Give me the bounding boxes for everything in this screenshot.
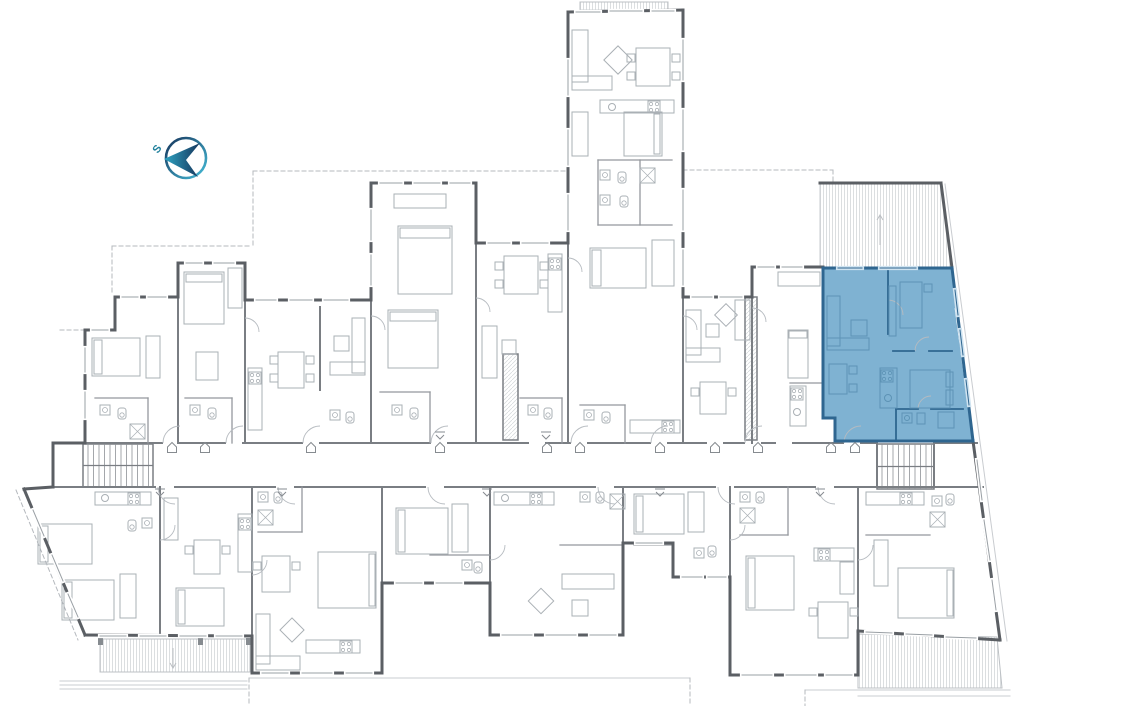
furniture — [788, 330, 808, 378]
furniture — [352, 318, 365, 373]
door-arc — [476, 298, 490, 312]
rug — [280, 618, 304, 642]
furniture — [185, 546, 193, 554]
sink-icon — [330, 410, 340, 420]
compass-north-indicator: S — [151, 138, 206, 178]
sink-icon — [142, 518, 152, 528]
furniture — [292, 562, 300, 570]
entrance-icon — [576, 443, 585, 453]
furniture — [394, 194, 446, 208]
furniture — [92, 338, 140, 376]
door-arc — [371, 316, 385, 330]
sink-icon — [584, 410, 594, 420]
highlighted-unit-layer[interactable] — [823, 268, 973, 441]
furniture — [178, 590, 185, 624]
furniture — [850, 608, 858, 616]
furniture — [495, 280, 503, 288]
door-arc — [226, 426, 243, 443]
unit-marker-icon — [816, 492, 824, 496]
furniture — [562, 574, 614, 589]
furniture — [390, 312, 436, 321]
furniture — [248, 368, 262, 430]
furniture — [672, 54, 680, 62]
furniture — [396, 508, 448, 554]
furniture-layer — [38, 30, 954, 670]
entrance-icon — [711, 443, 720, 453]
furniture — [572, 112, 588, 156]
sink-icon — [932, 496, 942, 506]
door-arc — [568, 258, 582, 272]
furniture — [590, 248, 646, 288]
sink-icon — [100, 405, 110, 415]
furniture — [700, 382, 726, 414]
furniture — [636, 48, 670, 86]
furniture — [262, 556, 290, 592]
furniture — [222, 546, 230, 554]
entrance-icon — [168, 443, 177, 453]
furniture — [634, 494, 684, 534]
furniture — [256, 656, 300, 670]
furniture — [818, 602, 848, 638]
balcony-post — [98, 638, 103, 645]
furniture — [194, 540, 220, 574]
floor-plan-svg: S — [0, 0, 1140, 706]
furniture — [388, 310, 438, 368]
furniture — [270, 374, 278, 382]
door-arc — [718, 487, 735, 504]
furniture — [866, 492, 924, 505]
furniture — [146, 336, 160, 378]
furniture — [874, 540, 888, 586]
door-arc — [431, 426, 448, 443]
furniture — [253, 562, 261, 570]
floor-plan: S — [0, 0, 1140, 706]
sink-icon — [794, 409, 801, 416]
furniture — [691, 388, 699, 396]
furniture — [572, 30, 588, 82]
sink-icon — [502, 495, 509, 502]
highlighted-unit[interactable] — [823, 268, 973, 441]
shaft — [503, 354, 518, 440]
sink-icon — [600, 170, 610, 180]
unit-marker-icon — [436, 435, 444, 439]
balcony-post — [246, 638, 251, 645]
furniture — [238, 514, 252, 572]
rug — [715, 304, 738, 327]
furniture — [572, 600, 588, 616]
furniture — [947, 570, 953, 616]
furniture — [176, 588, 224, 626]
entrance-icon — [307, 443, 316, 453]
furniture — [398, 226, 452, 294]
sink-icon — [392, 405, 402, 415]
furniture — [778, 272, 820, 286]
furniture — [789, 331, 807, 338]
furniture — [636, 496, 643, 532]
furniture — [164, 498, 178, 540]
terrace-hatch — [580, 2, 668, 10]
sink-icon — [102, 495, 109, 502]
furniture — [186, 274, 222, 282]
sink-icon — [258, 492, 268, 502]
furniture — [482, 326, 497, 378]
furniture — [654, 114, 660, 154]
furniture — [306, 356, 314, 364]
sink-icon — [600, 195, 610, 205]
unit-marker-icon — [542, 435, 550, 439]
furniture — [95, 492, 151, 505]
furniture — [306, 374, 314, 382]
door-arc — [730, 525, 745, 540]
furniture — [572, 76, 612, 90]
door-arc — [858, 545, 873, 560]
furniture — [504, 256, 538, 294]
compass-label: S — [151, 143, 165, 156]
door-arc — [245, 318, 259, 332]
furniture — [809, 608, 817, 616]
furniture — [318, 552, 376, 608]
terrace-hatch — [858, 634, 1002, 688]
door-arc — [160, 525, 175, 540]
furniture — [706, 324, 719, 337]
terrace-hatch — [820, 184, 952, 268]
furniture — [688, 492, 704, 532]
furniture — [728, 388, 736, 396]
furniture — [452, 504, 468, 552]
furniture — [548, 254, 562, 312]
balcony-post — [198, 638, 203, 645]
door-arc — [428, 487, 445, 504]
sink-icon — [609, 104, 616, 111]
furniture — [746, 556, 794, 610]
furniture — [600, 100, 674, 113]
furniture — [652, 240, 674, 286]
furniture — [184, 272, 224, 324]
furniture — [278, 352, 304, 388]
door-arc — [571, 426, 588, 443]
furniture — [494, 492, 554, 505]
rug — [604, 46, 632, 74]
door-arc — [683, 316, 697, 330]
terrace-hatch — [100, 639, 250, 672]
sink-icon — [694, 548, 704, 558]
furniture — [540, 262, 548, 270]
sink-icon — [528, 405, 538, 415]
furniture — [369, 554, 375, 606]
furniture — [840, 562, 854, 594]
entrance-icon — [851, 443, 860, 453]
furniture — [270, 356, 278, 364]
furniture — [592, 250, 601, 286]
sink-icon — [580, 492, 590, 502]
entrance-icon — [436, 443, 445, 453]
furniture — [400, 228, 450, 238]
furniture — [398, 510, 405, 552]
furniture — [94, 340, 102, 374]
furniture — [502, 340, 516, 354]
rug — [528, 588, 553, 613]
furniture — [334, 336, 349, 351]
sink-icon — [462, 560, 472, 570]
furniture — [748, 558, 755, 608]
furniture — [627, 72, 635, 80]
furniture — [495, 262, 503, 270]
door-arc — [303, 426, 320, 443]
furniture — [672, 72, 680, 80]
furniture — [540, 280, 548, 288]
door-arc — [278, 487, 295, 504]
entrance-icon — [656, 443, 665, 453]
sink-icon — [190, 405, 200, 415]
furniture — [228, 268, 242, 308]
furniture — [120, 574, 136, 618]
furniture — [898, 568, 954, 618]
furniture — [196, 352, 218, 380]
sink-icon — [740, 492, 750, 502]
door-arc — [490, 545, 505, 560]
furniture — [624, 112, 662, 156]
